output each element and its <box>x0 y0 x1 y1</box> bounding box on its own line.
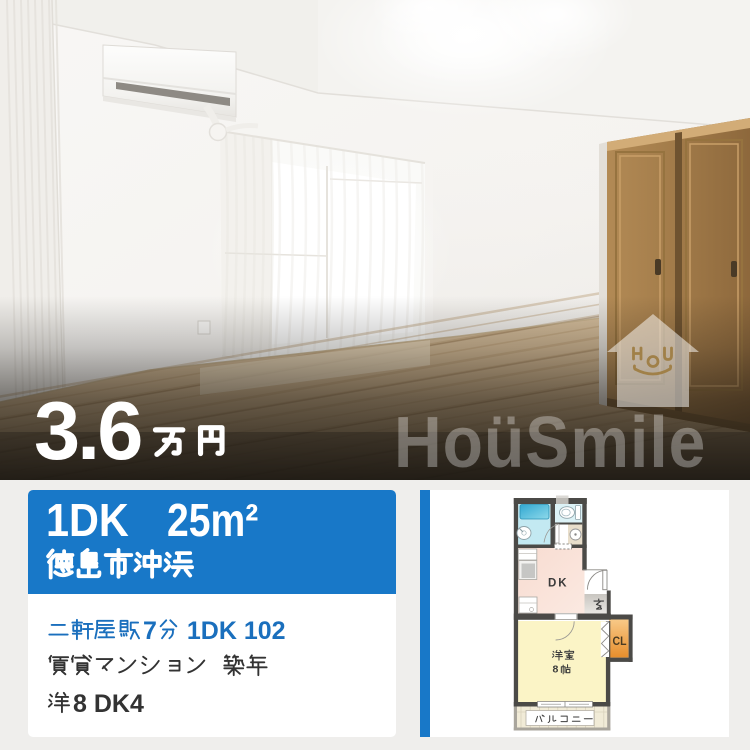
svg-text:CL: CL <box>613 636 627 649</box>
svg-text:8: 8 <box>553 664 559 676</box>
svg-text:DK: DK <box>548 578 569 590</box>
